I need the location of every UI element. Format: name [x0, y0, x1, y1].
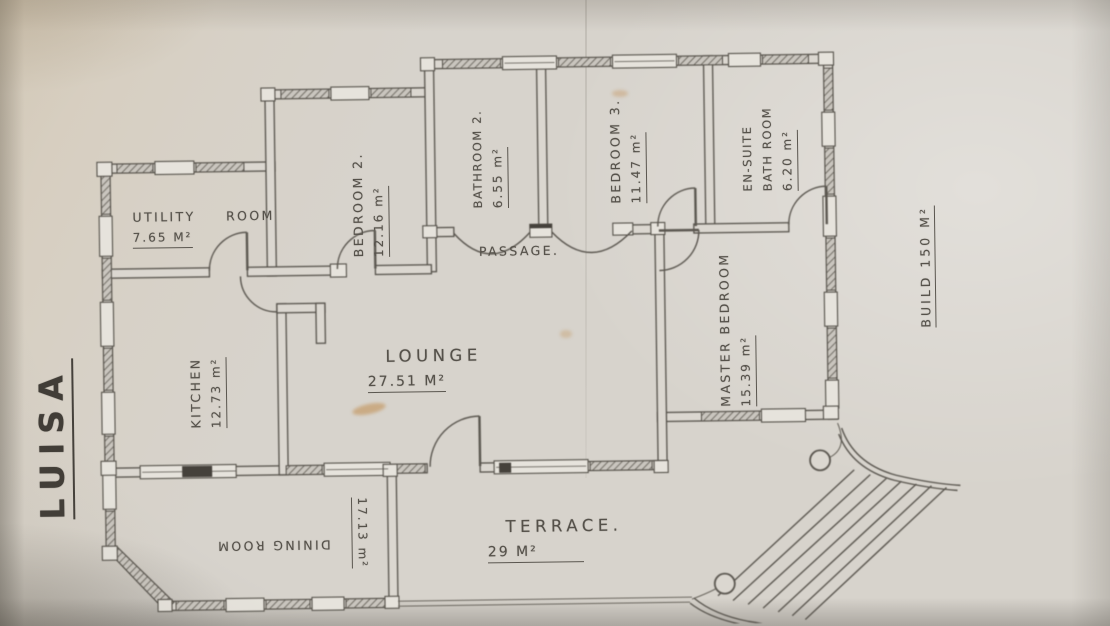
- room-label-master-bedroom: MASTER BEDROOM 15.39 m²: [717, 252, 757, 407]
- lounge-dark-block: [499, 463, 511, 473]
- passage-pier-cap: [530, 224, 552, 228]
- room-label-bedroom-3: BEDROOM 3. 11.47 m²: [608, 98, 648, 204]
- room-label-dining-room: DINING ROOM: [216, 537, 331, 553]
- floor-plan: LUISA UTILITY ROOM 7.65 M² BEDROOM 2. 12…: [0, 0, 1110, 626]
- room-label-kitchen: KITCHEN 12.73 m²: [189, 357, 228, 428]
- room-label-en-suite: EN-SUITE BATH ROOM 6.20 m²: [741, 106, 799, 191]
- room-label-bathroom-2: BATHROOM 2. 6.55 m²: [471, 109, 509, 208]
- kitchen-dark-block: [182, 466, 212, 477]
- build-area-note: BUILD 150 M²: [918, 206, 937, 328]
- drawing-title: LUISA: [32, 358, 75, 520]
- room-label-utility-room: UTILITY ROOM 7.65 M²: [132, 209, 275, 249]
- room-label-bedroom-2: BEDROOM 2. 12.16 m²: [351, 152, 391, 258]
- room-label-terrace: TERRACE. 29 M²: [487, 517, 623, 564]
- master-door-gap: [656, 232, 663, 270]
- floor-plan-photo: LUISA UTILITY ROOM 7.65 M² BEDROOM 2. 12…: [0, 0, 1110, 626]
- room-label-passage: PASSAGE.: [479, 244, 560, 259]
- room-area-dining-room: 17.13 m²: [351, 497, 369, 568]
- stairs-icon: [688, 426, 963, 626]
- room-label-lounge: LOUNGE 27.51 M²: [367, 346, 482, 393]
